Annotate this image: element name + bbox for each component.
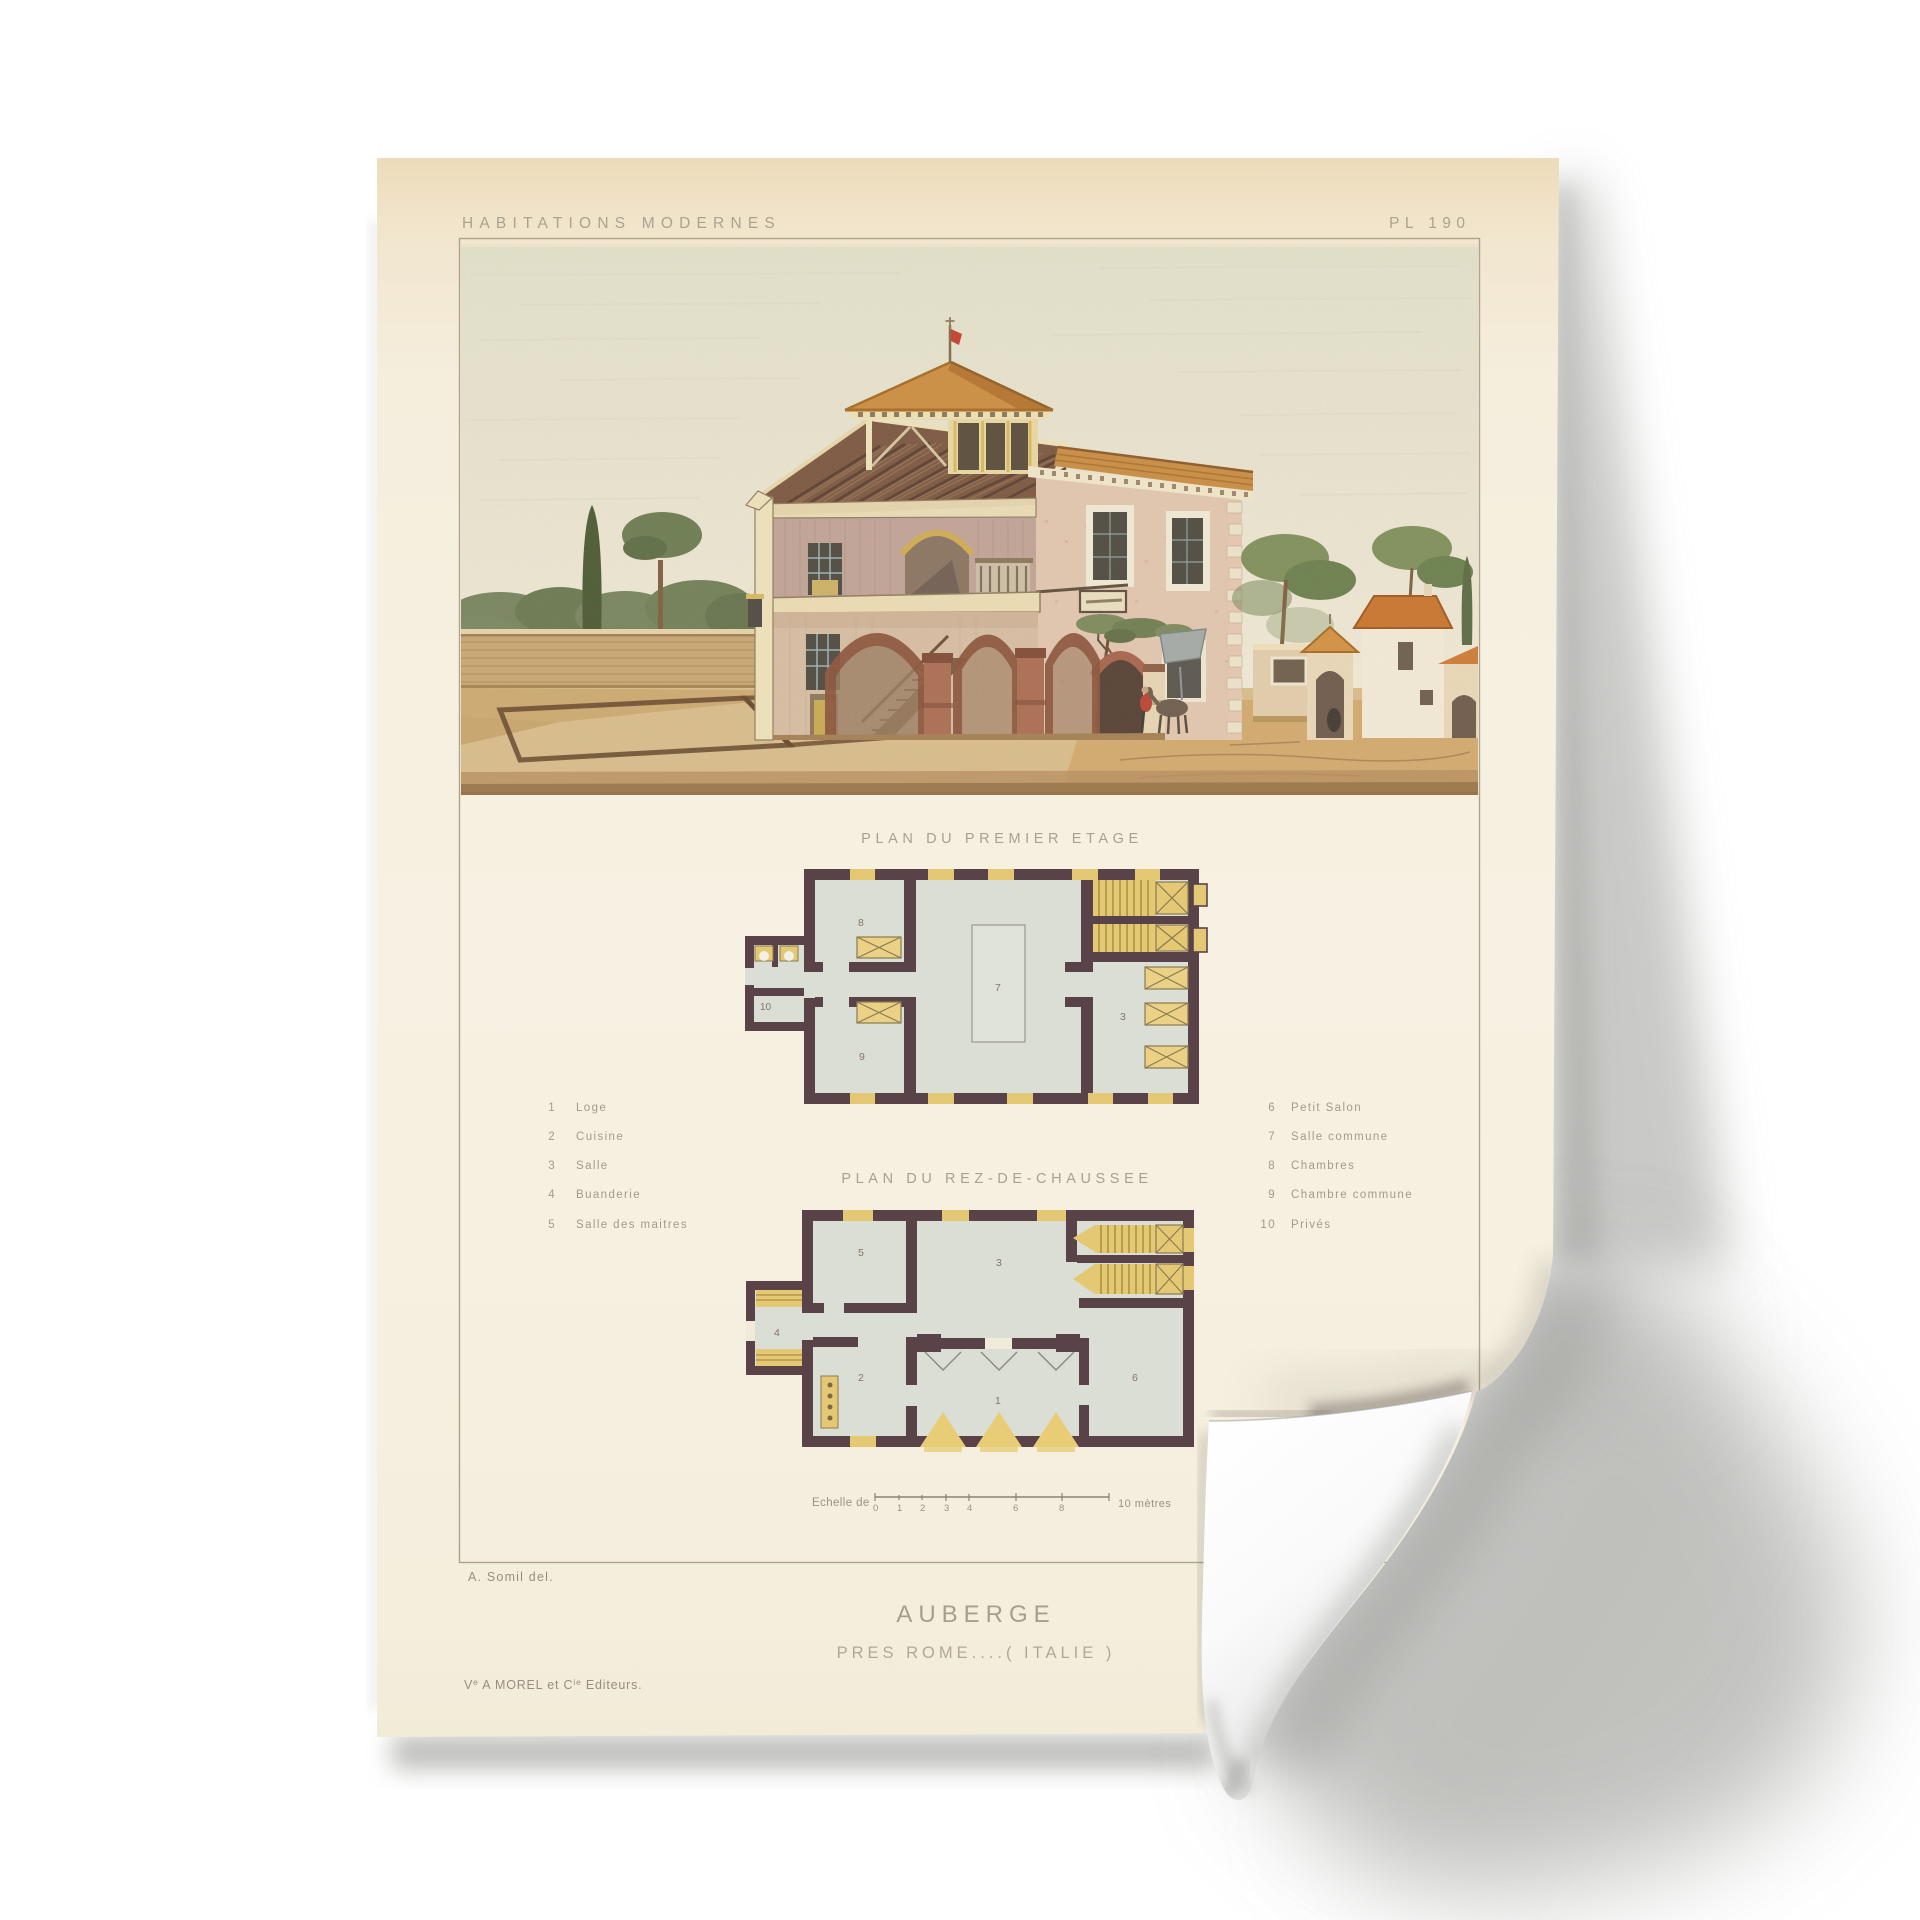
svg-text:Salle commune: Salle commune: [1291, 1131, 1388, 1143]
svg-text:10: 10: [1260, 1219, 1276, 1231]
svg-text:Buanderie: Buanderie: [576, 1189, 641, 1201]
svg-text:PLAN DU PREMIER ETAGE: PLAN DU PREMIER ETAGE: [861, 831, 1143, 847]
svg-text:3: 3: [548, 1160, 556, 1172]
svg-text:A. Somil del.: A. Somil del.: [468, 1570, 554, 1584]
svg-text:AUBERGE: AUBERGE: [896, 1601, 1055, 1628]
svg-text:Chambre commune: Chambre commune: [1291, 1189, 1413, 1201]
svg-text:8: 8: [858, 917, 864, 929]
svg-text:Salle des maitres: Salle des maitres: [576, 1219, 688, 1231]
svg-text:2: 2: [858, 1372, 864, 1384]
svg-text:2: 2: [548, 1131, 556, 1143]
svg-text:0: 0: [873, 1503, 878, 1514]
svg-text:PL 190: PL 190: [1389, 215, 1471, 232]
svg-text:8: 8: [1059, 1503, 1064, 1514]
svg-text:Petit Salon: Petit Salon: [1291, 1102, 1362, 1114]
svg-text:Ve A MOREL et Cie Editeurs.: Ve A MOREL et Cie Editeurs.: [464, 1677, 642, 1692]
svg-text:2: 2: [920, 1503, 925, 1514]
svg-text:5: 5: [548, 1219, 556, 1231]
svg-text:6: 6: [1013, 1503, 1018, 1514]
svg-text:7: 7: [995, 982, 1001, 994]
svg-text:3: 3: [944, 1503, 949, 1514]
svg-text:4: 4: [774, 1327, 780, 1339]
svg-text:3: 3: [996, 1257, 1002, 1269]
svg-text:8: 8: [1268, 1160, 1276, 1172]
svg-text:3: 3: [1120, 1011, 1126, 1023]
svg-text:10 mètres: 10 mètres: [1118, 1498, 1171, 1510]
svg-text:1: 1: [897, 1503, 902, 1514]
svg-text:7: 7: [1268, 1131, 1276, 1143]
svg-text:PRES ROME....( ITALIE ): PRES ROME....( ITALIE ): [837, 1644, 1116, 1662]
svg-text:1: 1: [995, 1395, 1001, 1407]
svg-text:9: 9: [1268, 1189, 1276, 1201]
svg-text:4: 4: [548, 1189, 556, 1201]
svg-text:Cuisine: Cuisine: [576, 1131, 624, 1143]
svg-text:1: 1: [548, 1102, 556, 1114]
svg-text:9: 9: [859, 1051, 865, 1063]
svg-text:Loge: Loge: [576, 1102, 607, 1114]
svg-text:Privés: Privés: [1291, 1219, 1331, 1231]
svg-text:Salle: Salle: [576, 1160, 609, 1172]
svg-text:Chambres: Chambres: [1291, 1160, 1355, 1172]
svg-text:4: 4: [967, 1503, 972, 1514]
svg-text:6: 6: [1132, 1372, 1138, 1384]
svg-text:5: 5: [858, 1247, 864, 1259]
svg-text:Echelle de: Echelle de: [812, 1497, 870, 1509]
svg-text:10: 10: [760, 1002, 772, 1013]
svg-text:PLAN DU REZ-DE-CHAUSSEE: PLAN DU REZ-DE-CHAUSSEE: [841, 1171, 1152, 1187]
svg-text:HABITATIONS MODERNES: HABITATIONS MODERNES: [462, 215, 781, 232]
svg-text:6: 6: [1268, 1102, 1276, 1114]
